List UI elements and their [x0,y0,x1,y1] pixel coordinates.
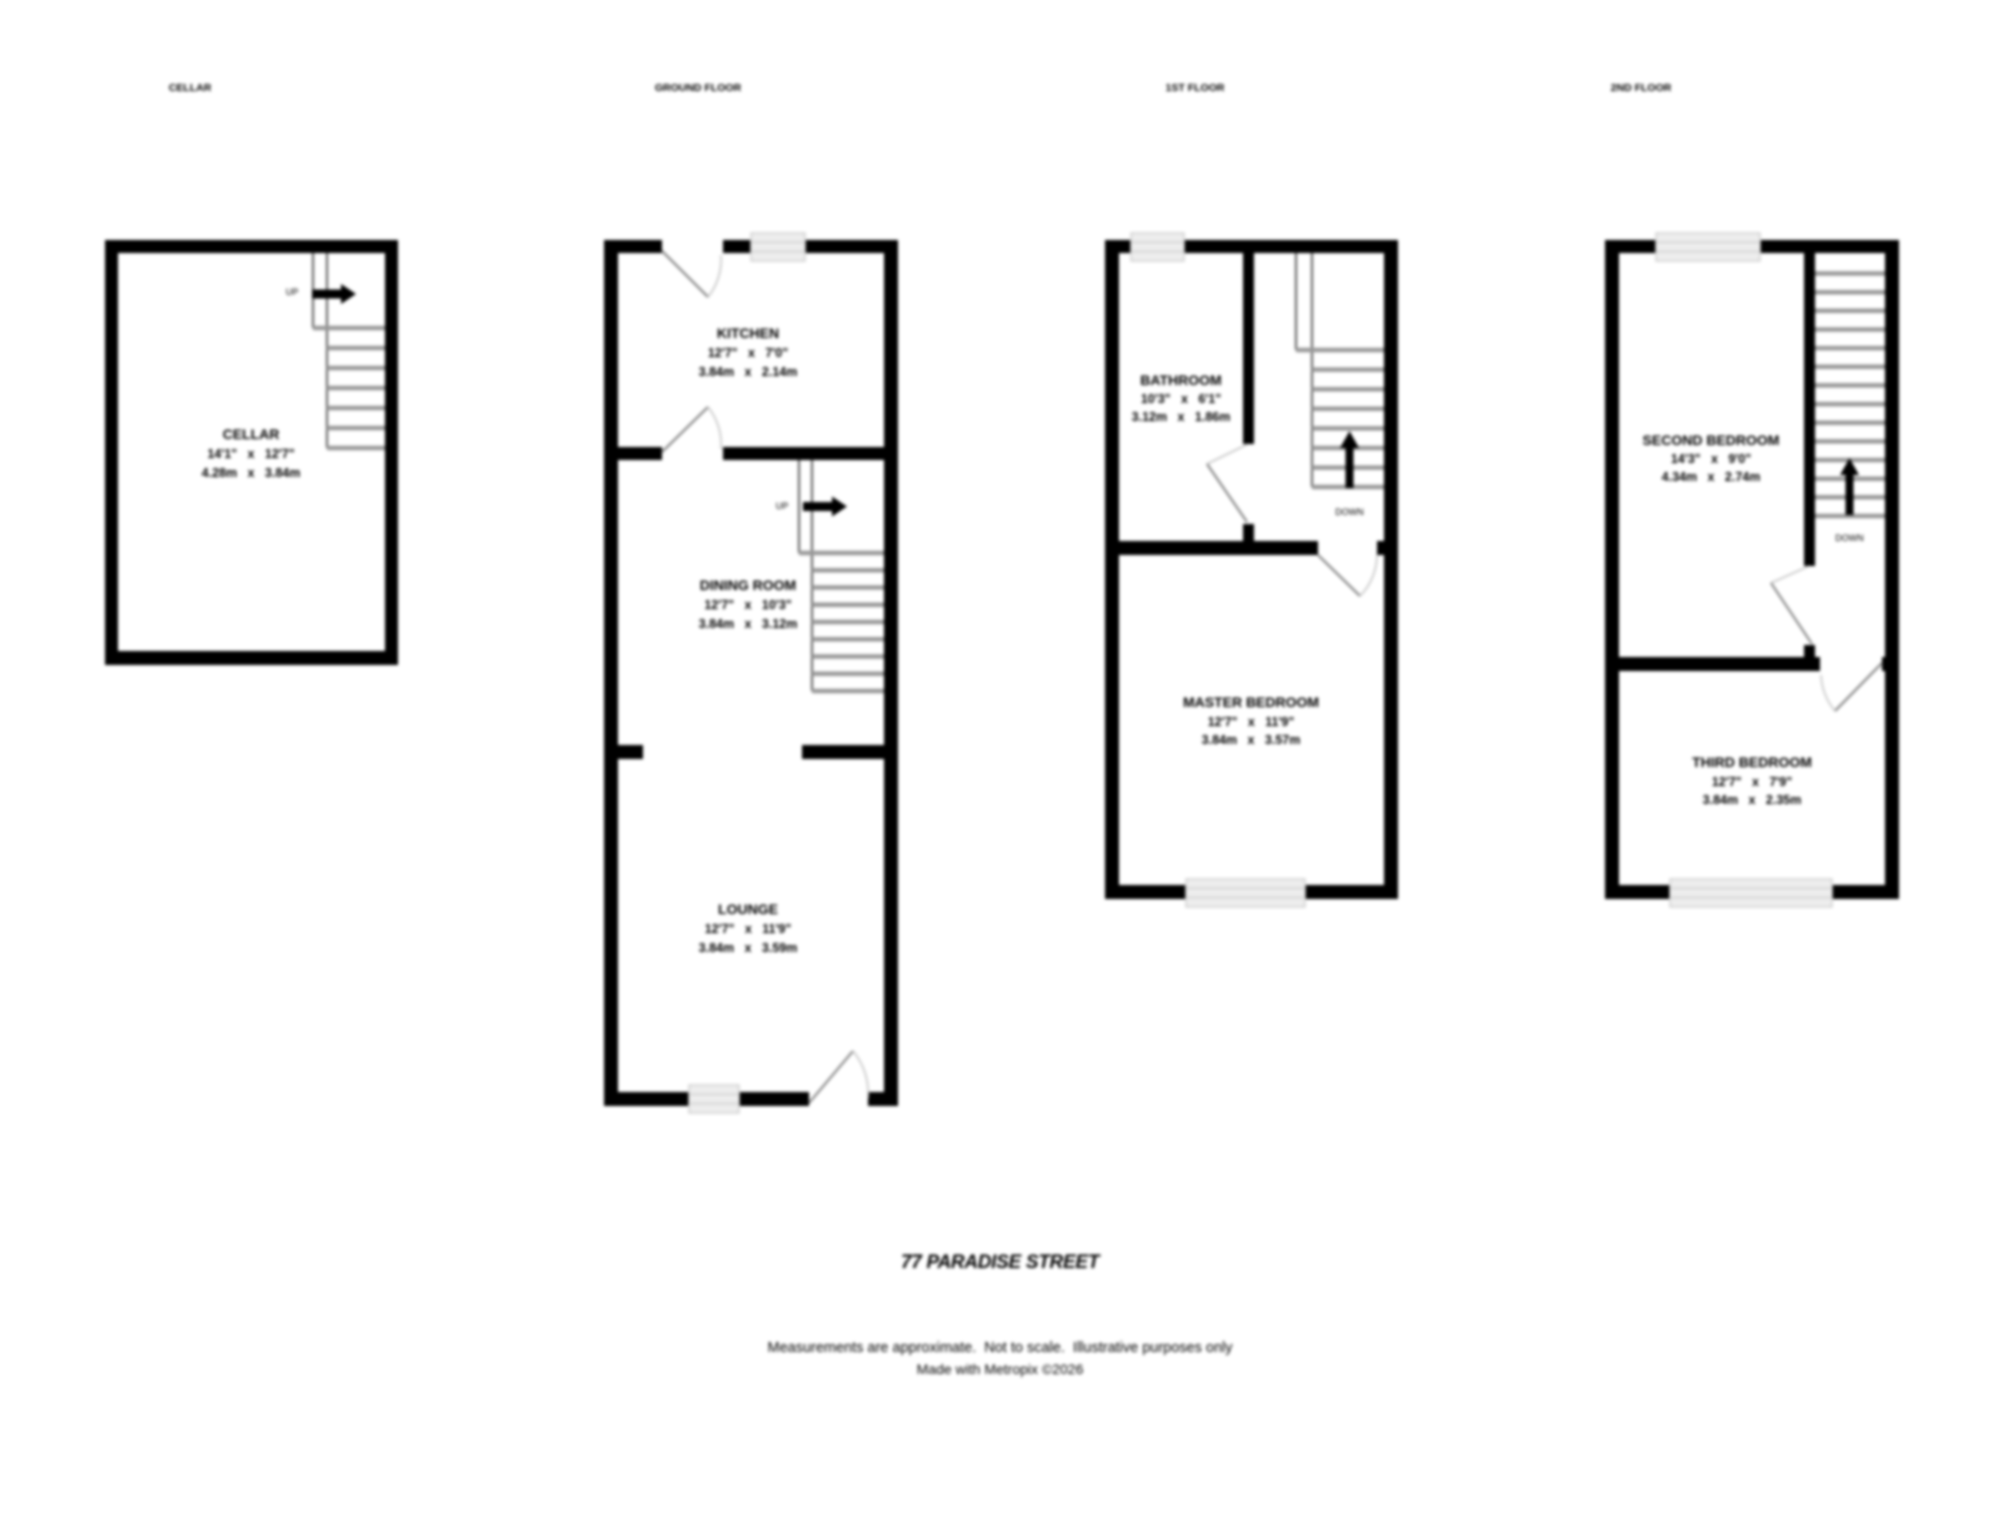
svg-text:12'7" x 11'9": 12'7" x 11'9" [1208,715,1295,729]
svg-text:3.84m x 3.57m: 3.84m x 3.57m [1202,733,1301,747]
svg-text:DOWN: DOWN [1835,533,1864,543]
svg-text:3.84m x 3.59m: 3.84m x 3.59m [699,941,798,955]
svg-text:10'3" x 6'1": 10'3" x 6'1" [1141,392,1221,406]
svg-text:1ST FLOOR: 1ST FLOOR [1166,82,1225,94]
svg-text:12'7" x 11'9": 12'7" x 11'9" [705,922,792,936]
svg-text:DOWN: DOWN [1335,507,1364,517]
svg-text:UP: UP [776,501,789,511]
svg-text:14'3" x 9'0": 14'3" x 9'0" [1671,452,1751,466]
svg-text:12'7" x 10'3": 12'7" x 10'3" [704,598,791,612]
svg-text:12'7" x 7'0": 12'7" x 7'0" [708,346,788,360]
svg-text:MASTER BEDROOM: MASTER BEDROOM [1183,694,1319,710]
svg-text:Measurements are approximate.: Measurements are approximate. Not to sca… [767,1340,1233,1356]
svg-text:BATHROOM: BATHROOM [1140,372,1221,388]
svg-text:CELLAR: CELLAR [223,426,280,442]
svg-text:14'1" x 12'7": 14'1" x 12'7" [207,447,294,461]
svg-text:CELLAR: CELLAR [169,82,212,94]
svg-text:3.84m x 2.14m: 3.84m x 2.14m [699,365,798,379]
svg-text:3.84m x 3.12m: 3.84m x 3.12m [699,617,798,631]
svg-text:THIRD BEDROOM: THIRD BEDROOM [1692,754,1812,770]
svg-text:LOUNGE: LOUNGE [718,901,778,917]
svg-text:77 PARADISE STREET: 77 PARADISE STREET [901,1252,1101,1273]
svg-text:UP: UP [286,287,299,297]
svg-text:2ND FLOOR: 2ND FLOOR [1611,82,1672,94]
svg-text:KITCHEN: KITCHEN [717,325,779,341]
svg-text:DINING ROOM: DINING ROOM [700,577,796,593]
svg-text:3.84m x 2.35m: 3.84m x 2.35m [1703,793,1802,807]
svg-text:3.12m x 1.86m: 3.12m x 1.86m [1132,410,1231,424]
svg-text:4.28m x 3.84m: 4.28m x 3.84m [202,466,301,480]
svg-text:Made with Metropix ©2026: Made with Metropix ©2026 [917,1361,1084,1377]
svg-text:SECOND BEDROOM: SECOND BEDROOM [1643,432,1780,448]
svg-text:12'7" x 7'9": 12'7" x 7'9" [1712,775,1792,789]
svg-text:GROUND FLOOR: GROUND FLOOR [655,82,742,94]
svg-text:4.34m x 2.74m: 4.34m x 2.74m [1662,470,1761,484]
